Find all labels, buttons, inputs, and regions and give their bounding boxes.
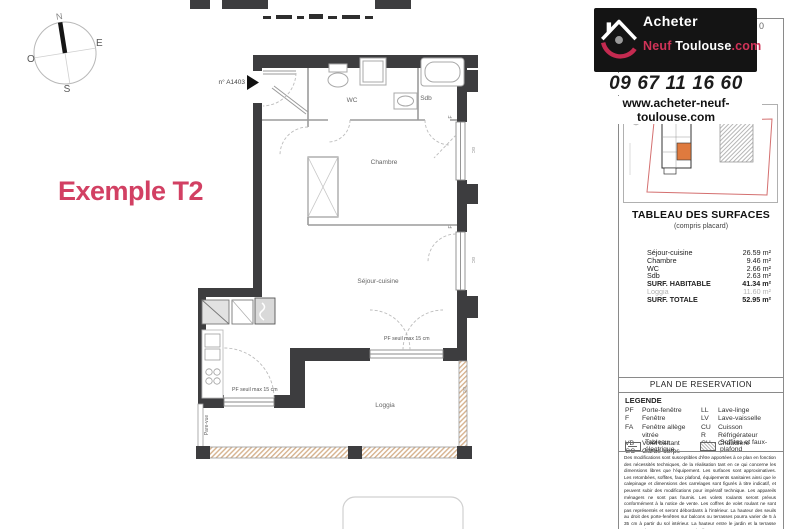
legend-item: LVLave-vaisselle xyxy=(701,415,777,423)
logo-text-com: .com xyxy=(731,39,761,53)
unit-number-label: n° A1403 xyxy=(219,78,246,86)
closet xyxy=(308,157,338,217)
legend-item: LLLave-linge xyxy=(701,407,777,415)
logo-text-toulouse: Toulouse xyxy=(672,39,732,53)
compass-west-label: O xyxy=(27,54,35,65)
soffits-icon xyxy=(700,442,716,451)
kitchen-fixtures xyxy=(202,298,275,398)
guardrail-label-3: GC xyxy=(462,387,467,393)
disclaimer-text: Des modifications sont susceptibles d'êt… xyxy=(624,455,776,529)
legend-label: Fenêtre xyxy=(642,415,665,423)
pare-vue-label: Pare-vue xyxy=(204,415,210,436)
legend-label: Fenêtre allège vitrée xyxy=(642,424,701,441)
legend-abbr: FA xyxy=(625,424,642,441)
row-label: SURF. TOTALE xyxy=(647,296,698,304)
window-f-label-1: F xyxy=(448,115,454,118)
toilet-tank-icon xyxy=(329,64,347,72)
room-label-wc: WC xyxy=(347,97,358,104)
compass-south-label: S xyxy=(64,84,71,95)
phone-number: 09 67 11 16 60 xyxy=(592,73,760,95)
sink-icon xyxy=(205,334,220,347)
legend-abbr: CU xyxy=(701,424,718,432)
lower-balcony-outline xyxy=(343,497,463,529)
compass-rose: N E O S xyxy=(25,13,109,97)
floor-plan-page: N E O S Exemple T2 xyxy=(0,0,800,529)
legend-label: Lave-linge xyxy=(718,407,749,415)
legend-item: FAFenêtre allège vitrée xyxy=(625,424,701,441)
interior-partitions xyxy=(262,68,457,225)
room-label-bedroom: Chambre xyxy=(371,159,398,166)
legend-title: LEGENDE xyxy=(625,396,662,405)
legend-label: Cuisson xyxy=(718,424,743,432)
reservation-plan-header: PLAN DE RESERVATION xyxy=(619,377,783,393)
legend-item: PFPorte-fenêtre xyxy=(625,407,701,415)
pf-threshold-label-1: PF seuil max 15 cm xyxy=(232,387,278,393)
surfaces-table: Séjour-cuisine26.59 m² Chambre9.46 m² WC… xyxy=(647,249,771,304)
website-url: www.acheter-neuf-toulouse.com xyxy=(590,96,762,124)
house-icon xyxy=(597,14,641,66)
guardrail-label-1: GC xyxy=(471,147,476,153)
compass-north-label: N xyxy=(55,13,63,22)
logo-text-acheter: Acheter xyxy=(643,13,698,29)
guardrail-label-2: GC xyxy=(471,257,476,263)
table-row-total: SURF. TOTALE52.95 m² xyxy=(647,296,771,304)
partial-hidden-digit: 0 xyxy=(759,21,764,31)
legend-abbr: PF xyxy=(625,407,642,415)
legend-label: Porte-fenêtre xyxy=(642,407,682,415)
legend-item: FFenêtre xyxy=(625,415,701,423)
building-b-footprint xyxy=(720,119,753,162)
boiler-icon xyxy=(255,298,275,324)
compass-cross: N xyxy=(28,13,101,88)
surfaces-table-subtitle: (compris placard) xyxy=(619,223,783,230)
room-label-living-kitchen: Séjour-cuisine xyxy=(357,278,399,285)
legend-abbr: LV xyxy=(701,415,718,423)
room-label-bathroom: Sdb xyxy=(420,95,432,102)
toilet-icon xyxy=(328,73,348,87)
entrance-arrow-icon xyxy=(247,75,259,90)
window-f-label-2: F xyxy=(448,225,454,228)
legend-abbr: LL xyxy=(701,407,718,415)
logo-text-neuf: Neuf xyxy=(643,39,672,53)
door-leaves xyxy=(263,71,308,114)
legend-item: CUCuisson xyxy=(701,424,777,432)
floor-plan-drawing: n° A1403 WC Sdb Chambre Séjour-cuisine L… xyxy=(188,0,488,529)
agency-logo: Acheter Neuf Toulouse.com xyxy=(594,8,757,72)
surfaces-table-title: TABLEAU DES SURFACES xyxy=(619,209,783,221)
room-label-loggia: Loggia xyxy=(375,402,395,409)
pare-vue-screen xyxy=(198,404,203,447)
compass-needle-icon xyxy=(60,22,65,53)
apartment-type-label: Exemple T2 xyxy=(58,176,203,207)
building-a-footprint xyxy=(662,122,691,174)
panel-divider xyxy=(619,451,783,452)
highlighted-unit xyxy=(677,143,691,160)
row-value: 52.95 m² xyxy=(742,296,771,304)
compass-east-label: E xyxy=(96,38,103,49)
logo-text-line2: Neuf Toulouse.com xyxy=(643,39,761,53)
electrical-panel-icon xyxy=(625,442,641,451)
pf-threshold-label-2: PF seuil max 15 cm xyxy=(384,336,430,342)
legend-abbr: F xyxy=(625,415,642,423)
legend-label: Lave-vaisselle xyxy=(718,415,761,423)
